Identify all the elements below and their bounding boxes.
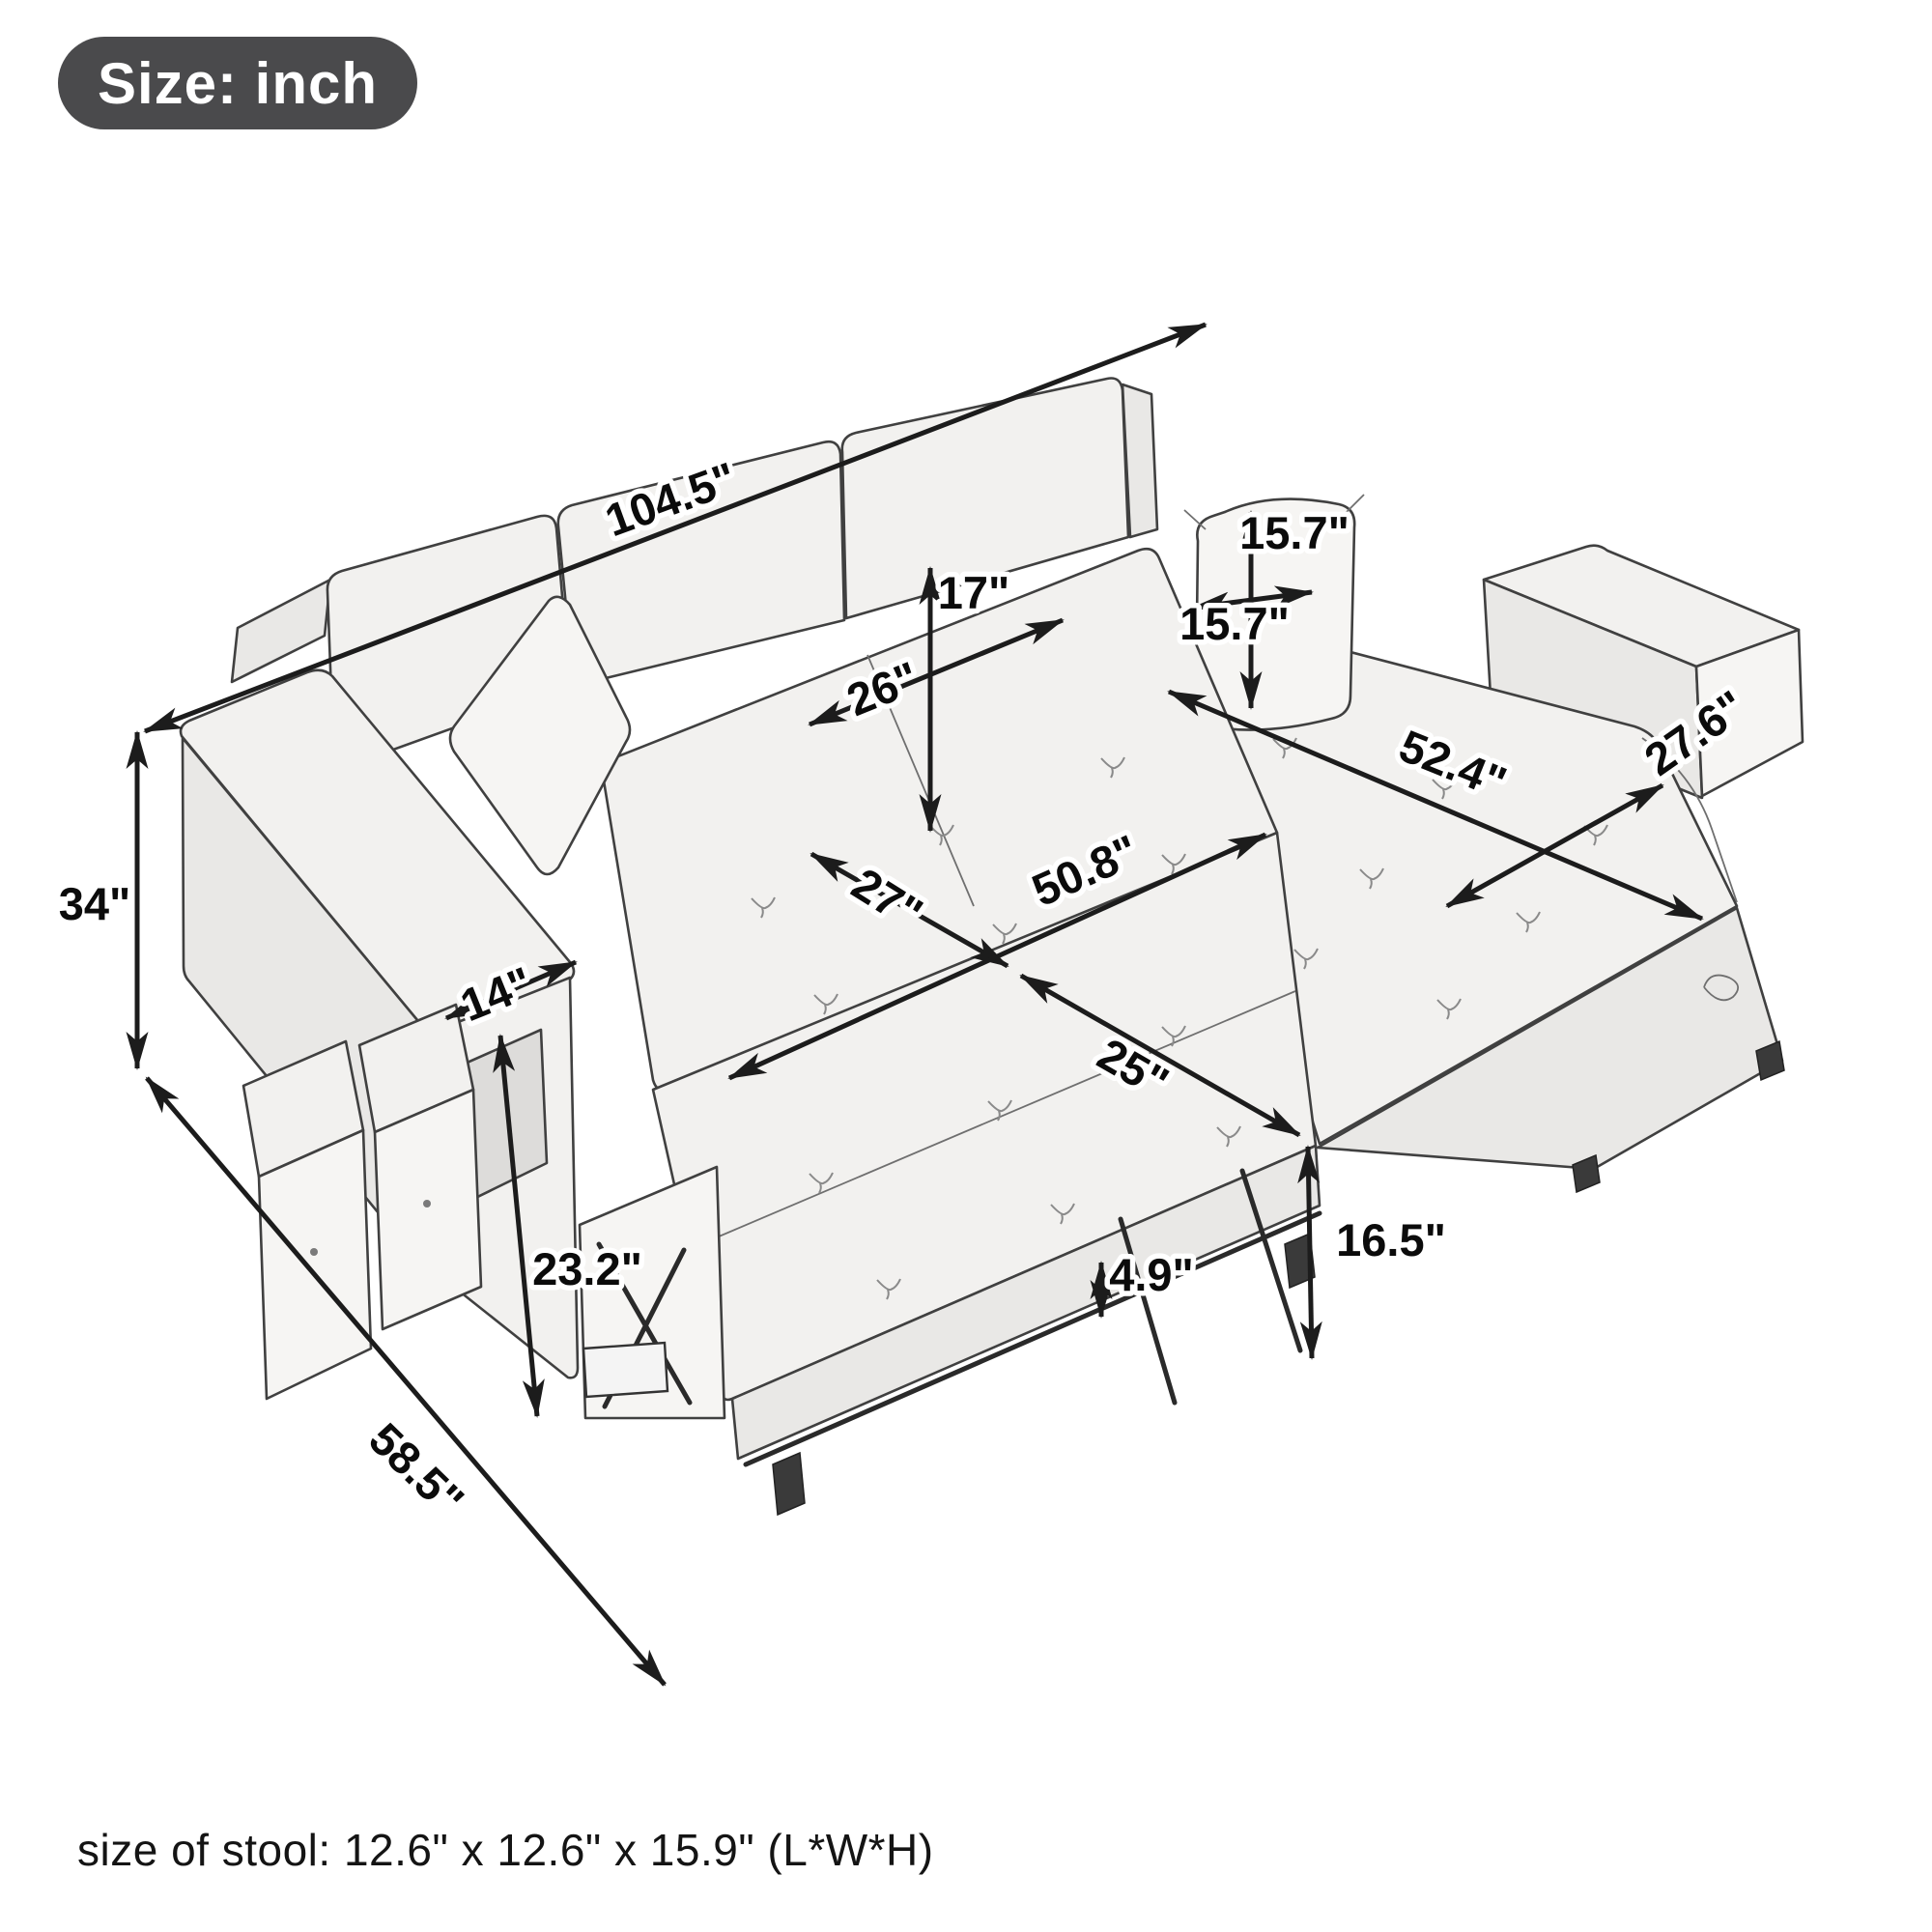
label-overall-height: 34"	[59, 878, 131, 929]
stool-button-2	[423, 1200, 431, 1207]
stool-size-footnote: size of stool: 12.6" x 12.6" x 15.9" (L*…	[77, 1824, 934, 1876]
label-arm-height: 23.2"	[532, 1243, 642, 1294]
dimension-diagram: 104.5" 34" 58.5" 23.2" 14" 17" 26" 27" 5…	[0, 0, 1932, 1932]
stool-front-face	[259, 1130, 371, 1399]
size-unit-badge-label: Size: inch	[98, 50, 378, 117]
label-mattress-thickness: 4.9"	[1109, 1249, 1194, 1300]
stool-button-1	[310, 1248, 318, 1256]
label-back-cushion-height: 17"	[938, 567, 1010, 618]
label-overall-depth: 58.5"	[359, 1413, 474, 1526]
sofa-sketch	[181, 379, 1803, 1516]
label-seat-height: 16.5"	[1336, 1214, 1446, 1265]
label-pillow-height: 15.7"	[1239, 507, 1350, 558]
size-unit-badge: Size: inch	[58, 37, 417, 129]
label-pillow-width: 15.7"	[1179, 598, 1290, 649]
stool-back-front	[375, 1090, 481, 1329]
left-arm-foot	[583, 1343, 668, 1397]
bed-front-foot	[773, 1453, 805, 1515]
